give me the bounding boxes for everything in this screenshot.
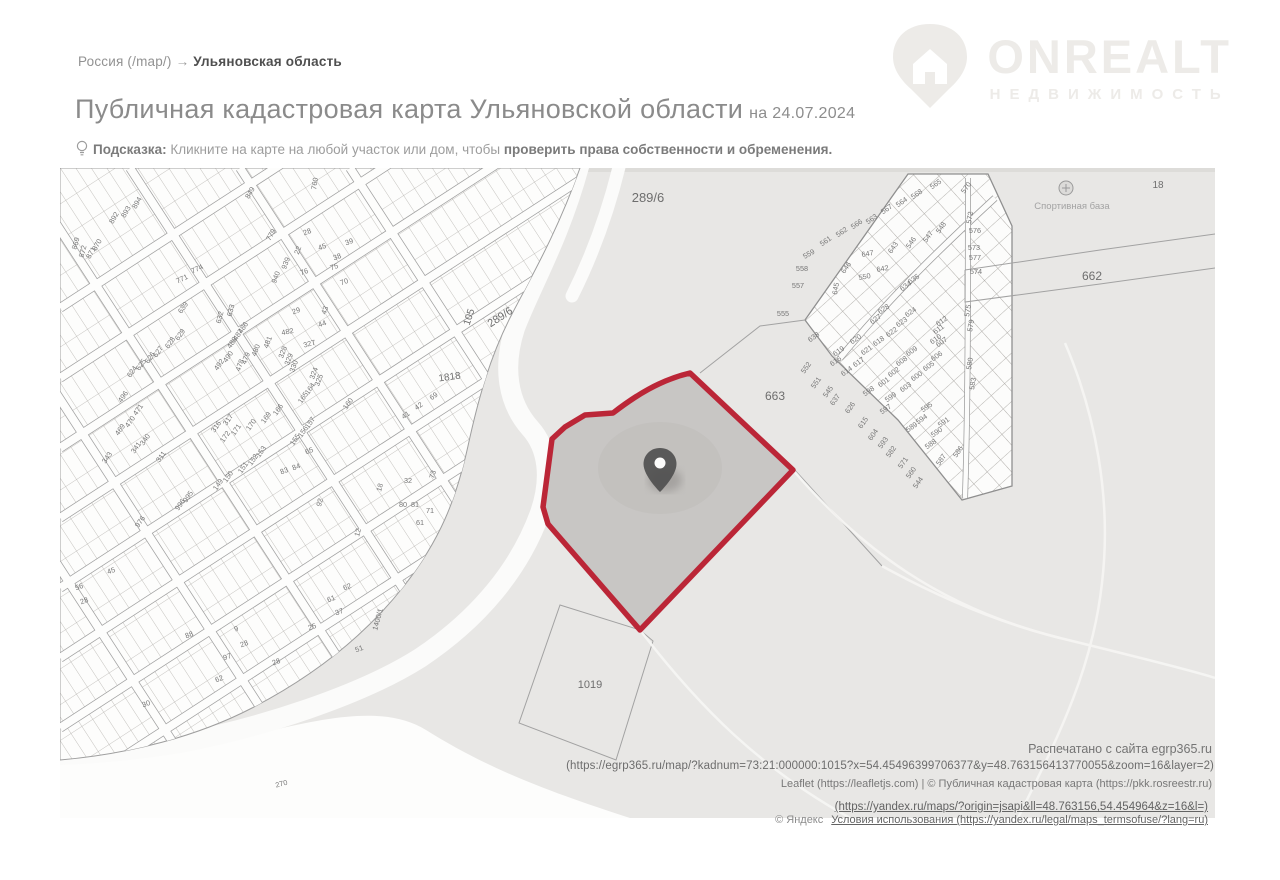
yandex-copyright: © Яндекс [775,814,823,826]
breadcrumb-arrow-icon: → [172,54,194,69]
parcel-number-label: 557 [792,281,804,290]
parcel-number-label: 71 [426,506,434,515]
page-title: Публичная кадастровая карта Ульяновской … [75,94,855,125]
hint-text: Кликните на карте на любой участок или д… [167,142,504,157]
area-label: 18 [1152,180,1164,191]
breadcrumb: Россия (/map/)→Ульяновская область [78,54,342,69]
cadastral-map[interactable]: 8948938928708718728698497797607747716396… [60,168,1215,818]
parcel-number-label: 558 [796,264,808,273]
parcel-number-label: 555 [777,309,789,318]
hint-text-bold: проверить права собственности и обремене… [504,142,832,157]
sport-base-icon [1059,181,1073,195]
parcel-number-label: 32 [404,476,412,485]
parcel-number-label: 576 [969,226,981,235]
logo-name: ONREALT [987,33,1232,80]
cadastral-map-svg[interactable]: 8948938928708718728698497797607747716396… [60,168,1215,818]
breadcrumb-root-link[interactable]: Россия (/map/) [78,54,172,69]
page-title-main: Публичная кадастровая карта Ульяновской … [75,94,743,124]
leaflet-attribution: Leaflet (https://leafletjs.com) | © Публ… [781,778,1212,790]
parcel-number-label: 80 [399,500,407,509]
breadcrumb-current: Ульяновская область [193,54,342,69]
hint-line: Подсказка: Кликните на карте на любой уч… [76,140,832,160]
yandex-attribution: © ЯндексУсловия использования (https://y… [775,814,1208,826]
yandex-maps-url[interactable]: (https://yandex.ru/maps/?origin=jsapi&ll… [835,801,1208,813]
parcel-number-label: 573 [968,243,980,252]
area-label: Спортивная база [1034,201,1110,212]
map-top-scan-edge [560,168,1215,172]
onrealt-pin-icon [887,20,973,116]
parcel-number-label: 577 [969,253,981,262]
hint-label: Подсказка: [93,142,167,157]
onrealt-logo: ONREALT НЕДВИЖИМОСТЬ [887,20,1232,116]
area-label: 662 [1082,269,1102,283]
parcel-number-label: 574 [970,267,982,276]
parcel-number-label: 81 [411,500,419,509]
logo-subtitle: НЕДВИЖИМОСТЬ [990,86,1230,103]
yandex-terms-link[interactable]: Условия использования (https://yandex.ru… [831,814,1208,826]
parcel-number-label: 61 [416,518,424,527]
printed-from-note: Распечатано с сайта egrp365.ru [1028,742,1212,756]
area-label: 289/6 [632,190,665,205]
page-title-date: на 24.07.2024 [749,105,855,122]
scanned-cadastral-page: Россия (/map/)→Ульяновская область ONREA… [0,0,1280,880]
area-label: 1019 [578,679,602,691]
egrp-url: (https://egrp365.ru/map/?kadnum=73:21:00… [566,760,1214,772]
lightbulb-icon [76,140,88,160]
area-label: 663 [765,389,785,403]
map-pin-hole [655,458,666,469]
